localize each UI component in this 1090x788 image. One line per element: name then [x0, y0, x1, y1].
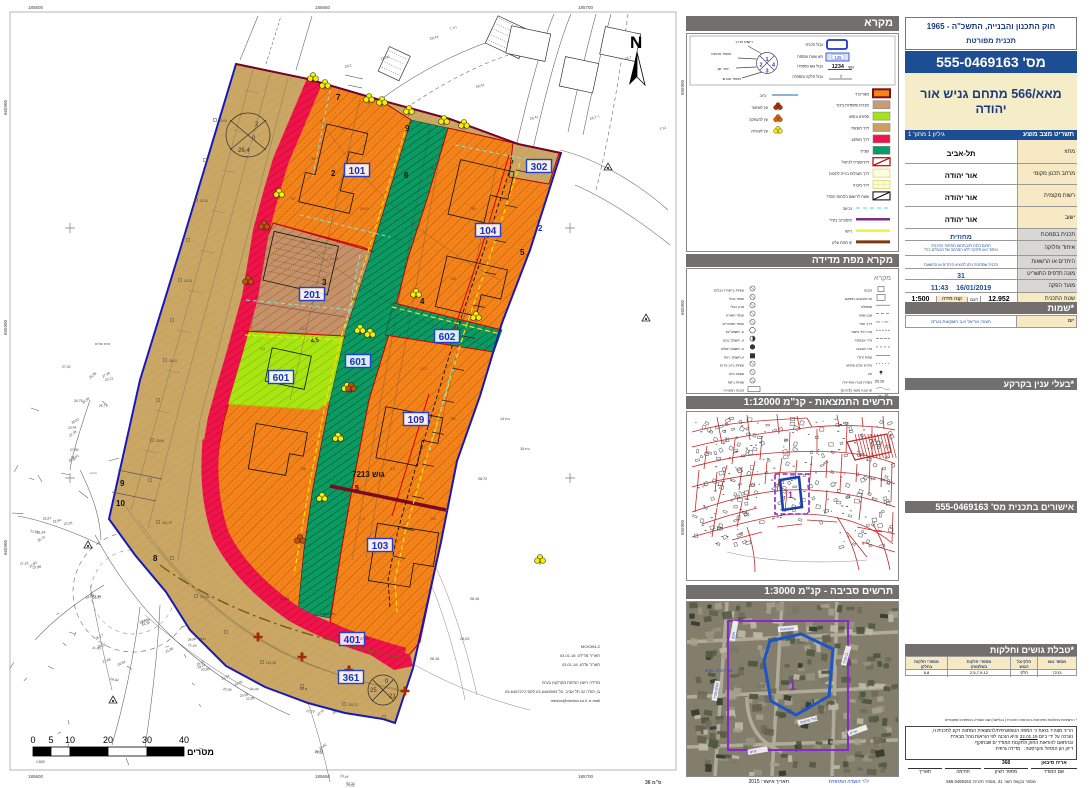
svg-text:9: 9 — [120, 479, 125, 488]
svg-text:185600: 185600 — [28, 774, 44, 779]
svg-text:665900: 665900 — [680, 299, 685, 315]
svg-text:26,73: 26,73 — [37, 535, 46, 543]
svg-text:4: 4 — [420, 297, 425, 306]
svg-text:23,56: 23,56 — [201, 667, 210, 672]
svg-text:749: 749 — [430, 517, 436, 521]
svg-text:665900: 665900 — [3, 319, 8, 335]
svg-text:מטרים: מטרים — [187, 747, 214, 757]
svg-text:214,08: 214,08 — [266, 661, 276, 665]
svg-text:665900: 665900 — [3, 99, 8, 115]
svg-text:185650: 185650 — [315, 5, 331, 10]
svg-text:26,7 ד: 26,7 ד — [589, 115, 600, 121]
svg-text:רח 1: רח 1 — [449, 25, 457, 31]
svg-text:751: 751 — [430, 167, 436, 171]
svg-text:27,06: 27,06 — [360, 637, 369, 641]
svg-text:24,28: 24,28 — [184, 279, 192, 283]
svg-text:22,91: 22,91 — [316, 708, 325, 717]
svg-text:21,43: 21,43 — [188, 643, 197, 648]
svg-text:27,88: 27,88 — [32, 565, 41, 570]
svg-text:בת 15: בת 15 — [520, 447, 530, 451]
svg-text:665900: 665900 — [680, 519, 685, 535]
svg-text:25: 25 — [370, 688, 377, 694]
svg-text:26,71: 26,71 — [99, 403, 108, 408]
svg-text:185600: 185600 — [28, 5, 44, 10]
svg-text:2: 2 — [538, 224, 543, 233]
svg-text:20: 20 — [103, 735, 113, 745]
svg-text:20,00: 20,00 — [219, 119, 227, 123]
svg-text:21,40: 21,40 — [92, 646, 101, 650]
svg-text:25,95: 25,95 — [88, 371, 97, 380]
svg-text:23,44: 23,44 — [68, 425, 77, 430]
svg-text:1: 1 — [788, 490, 793, 500]
svg-text:361: 361 — [343, 673, 360, 684]
svg-text:תאריך מדידה: 03.01.18: תאריך מדידה: 03.01.18 — [560, 653, 600, 658]
svg-text:24,46: 24,46 — [250, 687, 259, 691]
svg-text:27,90: 27,90 — [70, 448, 79, 452]
svg-text:20,84: 20,84 — [117, 660, 126, 667]
svg-text:28,56: 28,56 — [156, 439, 164, 443]
svg-text:MCK094-2: MCK094-2 — [581, 644, 601, 649]
svg-text:3: 3 — [322, 278, 327, 287]
svg-text:216,22: 216,22 — [348, 703, 358, 707]
svg-text:7,2: 7,2 — [360, 517, 365, 521]
svg-text:24,95: 24,95 — [330, 257, 339, 261]
svg-text:8: 8 — [153, 554, 158, 563]
svg-text:104: 104 — [480, 226, 497, 237]
svg-text:מדידה וייעוץ הנדסת מקרקעין בע": מדידה וייעוץ הנדסת מקרקעין בע"מ — [542, 680, 600, 685]
svg-text:756: 756 — [300, 467, 306, 471]
svg-text:תאריך עדכון: 03.01.18: תאריך עדכון: 03.01.18 — [562, 662, 600, 667]
svg-text:10: 10 — [65, 735, 75, 745]
svg-text:8,1: 8,1 — [280, 427, 285, 431]
svg-text:בן יהודה 32 תל אביב, טל 03-646: בן יהודה 32 תל אביב, טל 03-6465999 פקס 0… — [505, 689, 601, 694]
svg-text:26,62: 26,62 — [71, 417, 80, 425]
svg-text:22,14: 22,14 — [200, 199, 208, 203]
svg-text:N: N — [630, 33, 642, 52]
svg-text:25,94: 25,94 — [223, 687, 232, 692]
svg-text:27,46: 27,46 — [102, 657, 111, 664]
svg-text:1:500: 1:500 — [36, 760, 45, 764]
svg-text:40: 40 — [179, 735, 189, 745]
svg-text:26,4: 26,4 — [238, 148, 250, 154]
svg-text:רצף: רצף — [200, 637, 206, 641]
svg-text:28,2: 28,2 — [344, 63, 352, 69]
svg-text:27,04: 27,04 — [280, 597, 289, 601]
svg-text:748: 748 — [450, 277, 456, 281]
svg-text:185700: 185700 — [578, 774, 594, 779]
svg-text:4,12: 4,12 — [300, 327, 307, 331]
svg-text:12,2: 12,2 — [420, 367, 427, 371]
svg-text:757: 757 — [290, 197, 296, 201]
svg-text:אור יהודה - מחוז: אור יהודה - מחוז — [705, 668, 733, 673]
svg-text:201: 201 — [304, 290, 321, 301]
svg-text:20,32: 20,32 — [346, 783, 355, 788]
svg-text:36 ס"מ: 36 ס"מ — [645, 780, 662, 786]
svg-text:22,94: 22,94 — [52, 518, 61, 524]
svg-text:109: 109 — [408, 415, 425, 426]
svg-text:21,86: 21,86 — [165, 646, 174, 653]
svg-text:212,84: 212,84 — [200, 595, 210, 599]
svg-text:27,02: 27,02 — [62, 365, 71, 369]
svg-text:2,1: 2,1 — [395, 237, 400, 241]
svg-text:28,41: 28,41 — [475, 83, 485, 89]
svg-text:חניה מוצע: חניה מוצע — [320, 612, 336, 616]
svg-text:3,3: 3,3 — [260, 347, 265, 351]
svg-text:6: 6 — [404, 171, 409, 180]
svg-text:30: 30 — [142, 735, 152, 745]
svg-text:665900: 665900 — [680, 79, 685, 95]
svg-text:5,5: 5,5 — [390, 467, 395, 471]
svg-text:103: 103 — [372, 541, 389, 552]
svg-text:752: 752 — [470, 207, 476, 211]
svg-text:21: 21 — [389, 694, 396, 700]
svg-text:755: 755 — [350, 297, 356, 301]
svg-text:0: 0 — [30, 735, 35, 745]
svg-text:5: 5 — [520, 248, 525, 257]
svg-text:medva@medva.co.il :e-mail: medva@medva.co.il :e-mail — [551, 698, 601, 703]
svg-text:602: 602 — [439, 332, 456, 343]
svg-text:210,70: 210,70 — [162, 521, 172, 525]
svg-text:22,39: 22,39 — [68, 430, 77, 438]
svg-text:26,72: 26,72 — [478, 477, 487, 481]
svg-text:750: 750 — [340, 127, 346, 131]
svg-text:758: 758 — [310, 157, 316, 161]
svg-text:בת 14: בת 14 — [500, 417, 510, 421]
svg-text:302: 302 — [531, 162, 548, 173]
svg-text:28,94: 28,94 — [110, 677, 119, 682]
svg-text:26,42: 26,42 — [169, 359, 177, 363]
svg-text:22,88: 22,88 — [246, 696, 255, 701]
svg-text:5: 5 — [355, 485, 359, 492]
svg-text:23,44: 23,44 — [340, 774, 349, 779]
svg-text:26,18: 26,18 — [430, 657, 439, 661]
svg-text:185700: 185700 — [578, 5, 594, 10]
svg-text:40 ק: 40 ק — [300, 687, 307, 691]
svg-text:9: 9 — [405, 124, 410, 133]
svg-text:גוש 7213: גוש 7213 — [352, 470, 385, 479]
svg-text:23,35: 23,35 — [64, 521, 73, 526]
svg-text:ארגז ואלים: ארגז ואלים — [95, 342, 111, 346]
svg-text:401: 401 — [344, 635, 361, 646]
svg-text:28,44: 28,44 — [429, 35, 439, 41]
svg-text:10: 10 — [116, 499, 125, 508]
svg-text:28,41: 28,41 — [529, 115, 539, 121]
svg-text:26,23: 26,23 — [460, 637, 469, 641]
svg-text:601: 601 — [350, 357, 367, 368]
svg-text:1: 1 — [789, 678, 796, 693]
svg-text:26,96: 26,96 — [188, 637, 197, 642]
svg-text:בניין: בניין — [659, 125, 667, 131]
svg-text:26,78: 26,78 — [74, 399, 83, 403]
svg-text:601: 601 — [273, 373, 290, 384]
svg-text:26,16: 26,16 — [470, 597, 479, 601]
svg-text:25,21: 25,21 — [43, 516, 52, 521]
svg-text:665900: 665900 — [3, 539, 8, 555]
svg-text:754: 754 — [450, 417, 456, 421]
svg-text:5: 5 — [48, 735, 53, 745]
svg-text:101: 101 — [349, 166, 366, 177]
svg-text:2: 2 — [331, 169, 336, 178]
svg-text:25,10: 25,10 — [360, 207, 369, 211]
svg-text:7: 7 — [336, 93, 341, 102]
svg-text:21,64: 21,64 — [37, 530, 46, 535]
